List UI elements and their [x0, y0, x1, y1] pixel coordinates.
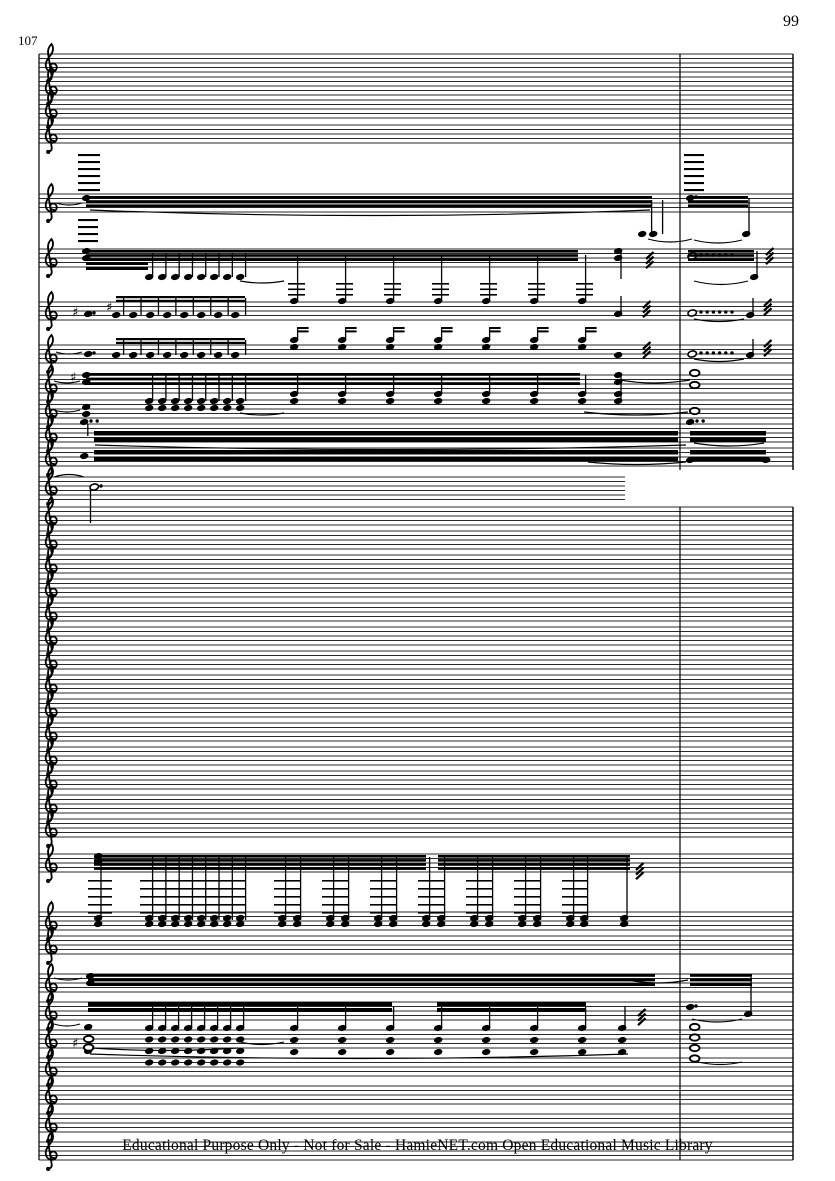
dots-figure — [89, 419, 99, 422]
ledger-figure — [78, 219, 98, 242]
staff-content — [46, 414, 766, 453]
treble-clef-icon — [46, 292, 57, 331]
chordrun-figure — [81, 403, 91, 418]
beam-figure — [94, 855, 426, 870]
dots-figure — [92, 311, 95, 314]
slash-figure — [643, 301, 651, 317]
beam-figure — [690, 974, 752, 986]
score-canvas: ♯♯♯♯ — [0, 0, 835, 1181]
dots-figure — [694, 195, 697, 198]
staff-content — [46, 438, 771, 477]
stems-figure — [652, 200, 663, 234]
chordrun-figure — [144, 273, 245, 281]
slash-figure — [766, 248, 774, 264]
tie-figure — [54, 410, 80, 412]
rungs-figure — [88, 880, 588, 914]
chordrun-figure — [637, 230, 658, 238]
beam-figure — [688, 250, 754, 261]
tie-figure — [240, 281, 284, 283]
slash-figure — [636, 863, 644, 879]
dots-figure — [99, 484, 102, 487]
beam-figure — [438, 855, 630, 870]
score-page: ♯♯♯♯ 107 99 Educational Purpose Only - N… — [0, 0, 835, 1181]
ledger-figure — [78, 154, 100, 191]
rungs-figure — [288, 283, 593, 296]
measure-number: 107 — [18, 33, 38, 49]
treble-clef-icon — [46, 964, 57, 1003]
chordrun-figure — [289, 390, 587, 405]
chordrun-figure — [289, 327, 596, 351]
tie-figure — [54, 1024, 80, 1026]
chordrun-figure — [289, 297, 587, 305]
sharp-figure: ♯ — [72, 1037, 78, 1052]
beam-figure — [437, 1002, 586, 1012]
tie-figure — [694, 240, 742, 243]
chordrun-figure — [617, 1024, 627, 1056]
beam-figure — [88, 974, 655, 986]
beam-figure — [690, 431, 766, 442]
slash-figure — [646, 252, 654, 268]
whole-figure — [690, 1024, 700, 1062]
svg-text:♯: ♯ — [106, 301, 112, 316]
chordrun-figure — [79, 452, 89, 460]
tie-figure — [648, 239, 692, 242]
sharp-figure: ♯ — [106, 301, 112, 316]
tie-figure — [694, 359, 744, 362]
staff-content — [46, 964, 753, 1022]
whole-figure — [690, 408, 700, 414]
beam-figure — [86, 196, 652, 207]
staff-content — [46, 844, 644, 928]
tie-figure — [692, 1019, 742, 1022]
beam-figure — [94, 431, 678, 442]
chordrun-figure — [289, 1024, 587, 1056]
treble-clef-icon — [46, 335, 57, 374]
beam-figure — [88, 1002, 392, 1012]
svg-text:♯: ♯ — [72, 306, 78, 321]
staff-content — [46, 390, 700, 429]
tie-figure — [694, 281, 748, 285]
chordrun-figure — [613, 351, 623, 359]
footer-text: Educational Purpose Only - Not for Sale … — [0, 1137, 835, 1155]
page-number: 99 — [783, 13, 799, 31]
tie-figure — [588, 462, 686, 465]
beam-figure — [86, 373, 580, 385]
staff-content — [46, 154, 751, 243]
beam-figure — [94, 450, 678, 461]
beam-figure — [116, 296, 245, 302]
staff-content: ♯ — [46, 365, 700, 404]
beam-figure — [86, 250, 578, 261]
staff-content: ♯♯ — [46, 292, 772, 331]
staff — [39, 477, 625, 500]
beam-figure — [86, 262, 148, 270]
slash-figure — [643, 342, 651, 358]
sharp-figure: ♯ — [72, 306, 78, 321]
dots-figure — [695, 419, 705, 422]
svg-text:♯: ♯ — [72, 1037, 78, 1052]
ledger-figure — [684, 154, 704, 191]
half-figure — [687, 350, 697, 358]
beam-figure — [116, 338, 245, 344]
treble-clef-icon — [46, 239, 57, 278]
treble-clef-icon — [46, 844, 57, 883]
dots-figure — [694, 1004, 697, 1007]
tie-figure — [95, 445, 686, 450]
dots-figure — [92, 351, 95, 354]
chordrun-figure — [83, 350, 93, 358]
staff-content — [46, 327, 772, 374]
slash-figure — [764, 299, 772, 315]
treble-clef-icon — [46, 184, 57, 223]
beam-figure — [690, 450, 766, 461]
tie-figure — [694, 443, 764, 446]
chordrun-figure — [685, 418, 695, 426]
whole-figure — [690, 370, 700, 388]
staff-content — [46, 219, 774, 305]
chordrun-figure — [685, 1003, 695, 1011]
tie-figure — [90, 210, 650, 216]
